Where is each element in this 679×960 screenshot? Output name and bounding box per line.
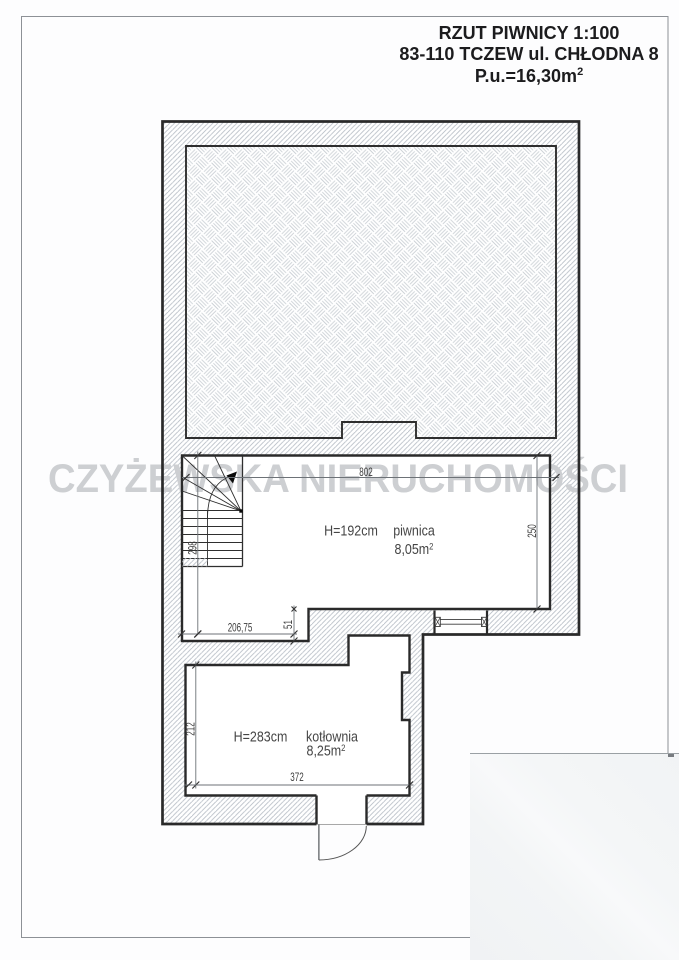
svg-text:8,05m2: 8,05m2 <box>395 541 434 557</box>
svg-text:250: 250 <box>527 524 540 538</box>
svg-text:8,25m2: 8,25m2 <box>307 742 346 758</box>
svg-text:802: 802 <box>359 467 373 480</box>
svg-text:372: 372 <box>290 772 304 785</box>
svg-text:212: 212 <box>185 722 198 736</box>
svg-text:298: 298 <box>187 541 200 555</box>
svg-text:H=283cm: H=283cm <box>234 729 288 745</box>
svg-text:piwnica: piwnica <box>393 523 435 539</box>
svg-text:51: 51 <box>283 620 296 629</box>
svg-text:H=192cm: H=192cm <box>324 523 378 539</box>
svg-text:206,75: 206,75 <box>228 622 253 635</box>
svg-text:CZYŻEWSKA NIERUCHOMOŚCI: CZYŻEWSKA NIERUCHOMOŚCI <box>48 457 628 501</box>
